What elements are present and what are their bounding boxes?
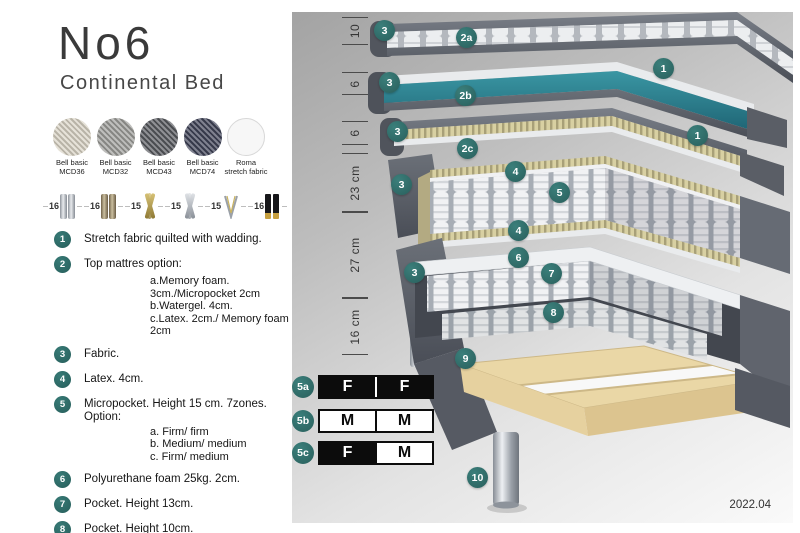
fabric-swatch: Bell basicMCD74 xyxy=(183,118,223,176)
callout-badge: 8 xyxy=(543,302,564,323)
legend-item: 5 Micropocket. Height 15 cm. 7zones. Opt… xyxy=(54,396,292,424)
firmness-row-5c: 5c F M xyxy=(292,441,434,465)
legend-item: 3 Fabric. xyxy=(54,346,292,363)
fabric-swatch: Bell basicMCD32 xyxy=(96,118,136,176)
leg-option: 16 xyxy=(42,194,83,219)
callout-badge: 3 xyxy=(404,262,425,283)
legend-text: Pocket. Height 10cm. xyxy=(84,521,193,533)
fabric-swatch: Bell basicMCD43 xyxy=(139,118,179,176)
callout-badge: 3 xyxy=(374,20,395,41)
callout-badge: 1 xyxy=(687,125,708,146)
swatch-code: MCD32 xyxy=(103,167,128,176)
firmness-table: M M xyxy=(318,409,434,433)
legend-text: Polyurethane foam 25kg. 2cm. xyxy=(84,471,240,488)
legend-item: 2 Top mattres option: xyxy=(54,256,292,273)
dimension-6a: 6 xyxy=(342,72,368,95)
layer-legend: 1 Stretch fabric quilted with wadding. 2… xyxy=(54,231,292,533)
leg-height: 15 xyxy=(131,201,141,211)
callout-badge: 5 xyxy=(549,182,570,203)
legend-number-badge: 6 xyxy=(54,471,71,488)
cylinder-leg-silver-icon xyxy=(60,194,76,219)
legend-subitem: c.Latex. 2cm./ Memory foam 2cm xyxy=(150,313,292,338)
callout-badge: 3 xyxy=(387,121,408,142)
leg-height: 15 xyxy=(211,201,221,211)
legend-number-badge: 4 xyxy=(54,371,71,388)
firmness-table: F F xyxy=(318,375,434,399)
fabric-swatch-icon xyxy=(184,118,222,156)
leg-height: 15 xyxy=(171,201,181,211)
firmness-badge: 5a xyxy=(292,376,314,398)
dimension-23cm: 23 cm xyxy=(342,153,368,212)
dimension-6b: 6 xyxy=(342,121,368,145)
callout-badge: 3 xyxy=(391,174,412,195)
legend-subitem: b. Medium/ medium xyxy=(150,438,292,451)
fabric-swatch-icon xyxy=(140,118,178,156)
leg-height: 16 xyxy=(49,201,59,211)
swatch-code: MCD36 xyxy=(59,167,84,176)
callout-badge: 6 xyxy=(508,247,529,268)
legend-item: 6 Polyurethane foam 25kg. 2cm. xyxy=(54,471,292,488)
callout-badge: 9 xyxy=(455,348,476,369)
legend-item: 7 Pocket. Height 13cm. xyxy=(54,496,292,513)
dimension-27cm: 27 cm xyxy=(342,212,368,298)
dimension-16cm: 16 cm xyxy=(342,298,368,355)
legend-subitem: c. Firm/ medium xyxy=(150,451,292,464)
leg-options: 16 16 15 15 15 xyxy=(42,186,270,226)
legend-text: Micropocket. Height 15 cm. 7zones. Optio… xyxy=(84,396,292,424)
legend-text: Pocket. Height 13cm. xyxy=(84,496,193,513)
leg-option: 15 xyxy=(164,193,204,219)
leg-option: 15 xyxy=(124,193,164,219)
legend-number-badge: 7 xyxy=(54,496,71,513)
legend-number-badge: 8 xyxy=(54,521,71,533)
callout-badge: 4 xyxy=(505,161,526,182)
info-column: No6 Continental Bed Bell basicMCD36 Bell… xyxy=(0,0,292,533)
legend-text: Stretch fabric quilted with wadding. xyxy=(84,231,262,248)
legend-text: Latex. 4cm. xyxy=(84,371,143,388)
legend-text: Top mattres option: xyxy=(84,256,182,273)
firmness-cell: F xyxy=(320,443,375,463)
leg-option: 16 xyxy=(83,194,124,219)
leg-option: 16 xyxy=(247,194,288,219)
legend-subitem: b.Watergel. 4cm. xyxy=(150,300,292,313)
leg-option: 15 xyxy=(204,193,247,219)
swatch-code: stretch fabric xyxy=(225,167,268,176)
firmness-cell: M xyxy=(375,443,432,463)
legend-subitems: a.Memory foam. 3cm./Micropocket 2cm b.Wa… xyxy=(150,275,292,338)
legend-item: 8 Pocket. Height 10cm. xyxy=(54,521,292,533)
exploded-bed-panel: 10 6 6 23 cm 27 cm 16 cm 3 2a 1 3 2b 3 2… xyxy=(292,12,793,523)
legend-subitems: a. Firm/ firm b. Medium/ medium c. Firm/… xyxy=(150,426,292,464)
version-label: 2022.04 xyxy=(729,499,771,511)
firmness-cell: M xyxy=(375,411,432,431)
hairpin-leg-icon xyxy=(222,193,240,219)
legend-item: 1 Stretch fabric quilted with wadding. xyxy=(54,231,292,248)
legend-subitem: a. Firm/ firm xyxy=(150,426,292,439)
fabric-swatch: Romastretch fabric xyxy=(226,118,266,176)
legend-number-badge: 5 xyxy=(54,396,71,413)
callout-badge: 2a xyxy=(456,27,477,48)
firmness-row-5b: 5b M M xyxy=(292,409,434,433)
callout-badge: 3 xyxy=(379,72,400,93)
cylinder-leg-bronze-icon xyxy=(101,194,117,219)
fabric-swatch-icon xyxy=(53,118,91,156)
firmness-row-5a: 5a F F xyxy=(292,375,434,399)
legend-number-badge: 3 xyxy=(54,346,71,363)
legend-subitem: a.Memory foam. 3cm./Micropocket 2cm xyxy=(150,275,292,300)
swatch-code: MCD43 xyxy=(146,167,171,176)
product-sheet: No6 Continental Bed Bell basicMCD36 Bell… xyxy=(0,0,800,533)
fabric-swatch: Bell basicMCD36 xyxy=(52,118,92,176)
firmness-badge: 5c xyxy=(292,442,314,464)
front-leg xyxy=(487,432,527,513)
leg-height: 16 xyxy=(254,201,264,211)
twist-leg-silver-icon xyxy=(182,193,197,219)
fabric-swatch-icon xyxy=(97,118,135,156)
legend-number-badge: 1 xyxy=(54,231,71,248)
callout-badge: 2b xyxy=(455,85,476,106)
legend-text: Fabric. xyxy=(84,346,119,363)
callout-badge: 2c xyxy=(457,138,478,159)
firmness-badge: 5b xyxy=(292,410,314,432)
twist-leg-gold-icon xyxy=(142,193,157,219)
callout-badge: 1 xyxy=(653,58,674,79)
leg-height: 16 xyxy=(90,201,100,211)
product-title: No6 xyxy=(58,16,154,70)
callout-badge: 7 xyxy=(541,263,562,284)
firmness-cell: F xyxy=(375,377,432,397)
swatch-code: MCD74 xyxy=(190,167,215,176)
fabric-swatches: Bell basicMCD36 Bell basicMCD32 Bell bas… xyxy=(52,118,266,176)
dimension-10: 10 xyxy=(342,17,368,45)
product-subtitle: Continental Bed xyxy=(60,72,225,95)
firmness-table: F M xyxy=(318,441,434,465)
block-leg-black-icon xyxy=(265,194,281,219)
callout-badge: 4 xyxy=(508,220,529,241)
firmness-cell: F xyxy=(320,377,375,397)
callout-badge: 10 xyxy=(467,467,488,488)
legend-item: 4 Latex. 4cm. xyxy=(54,371,292,388)
fabric-swatch-icon xyxy=(227,118,265,156)
legend-number-badge: 2 xyxy=(54,256,71,273)
firmness-cell: M xyxy=(320,411,375,431)
